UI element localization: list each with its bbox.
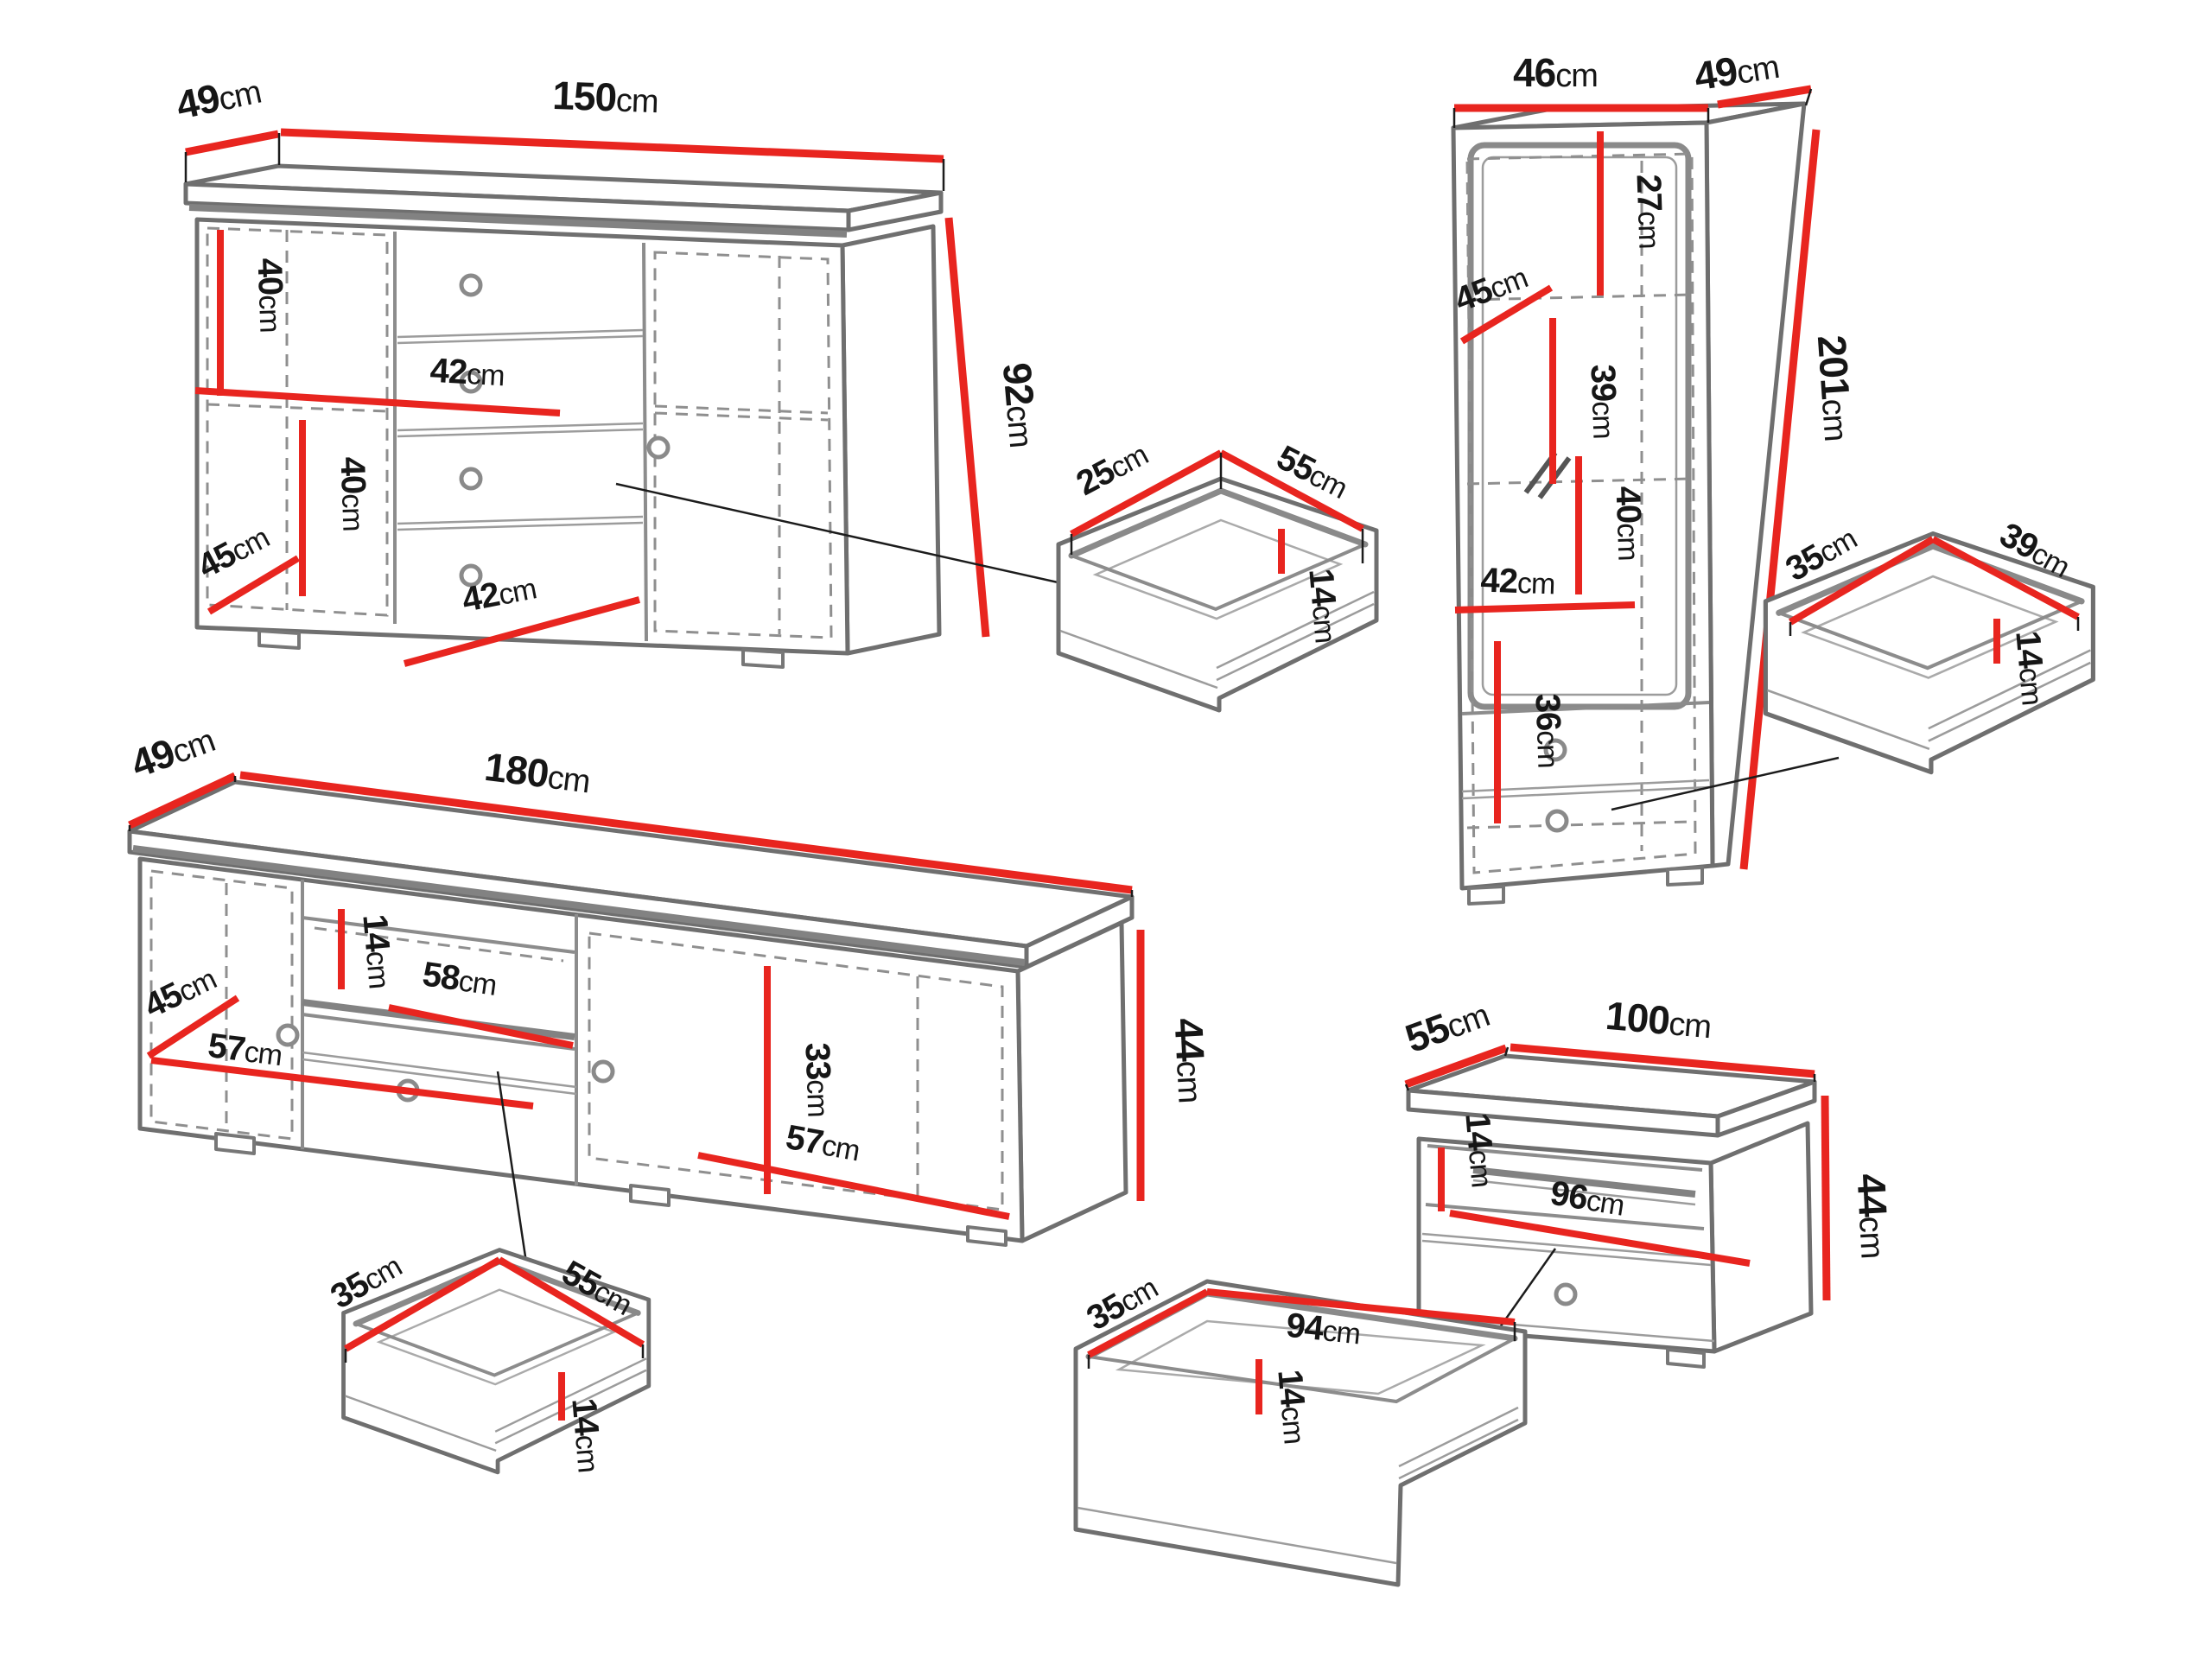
right-drawer-inset: 35cm 39cm 14cm — [1765, 516, 2093, 772]
dim-tv-cabinet-depth: 55cm — [1400, 990, 1495, 1061]
dim-drawer-top-width: 55cm — [1271, 438, 1354, 505]
diagram-canvas: 49cm 150cm 92cm 40cm 42cm 40cm 45cm 42cm… — [0, 0, 2212, 1659]
dim-tall-cabinet-lower-section: 36cm — [1529, 693, 1569, 768]
tv-cabinet: 55cm 100cm 44cm 14cm 96cm — [1400, 990, 1898, 1367]
dimension-line — [949, 218, 986, 637]
foot — [1469, 887, 1503, 904]
top-drawer-inset: 25cm 55cm 14cm — [1058, 435, 1376, 710]
dim-tv-stand-depth: 49cm — [125, 715, 220, 786]
dim-tall-cabinet-upper-section: 39cm — [1584, 364, 1624, 439]
dim-drawer-top-height: 14cm — [1301, 567, 1345, 644]
dim-tv-stand-right-height: 33cm — [798, 1042, 839, 1117]
drawer-knob — [1556, 1285, 1575, 1304]
dimension-line — [1825, 1096, 1827, 1300]
foot — [1668, 1350, 1704, 1367]
dim-tv-cabinet-width: 100cm — [1604, 993, 1713, 1046]
side-panel — [1018, 923, 1126, 1241]
dim-tall-cabinet-width: 46cm — [1513, 50, 1598, 95]
side-panel — [1711, 1123, 1811, 1351]
dim-drawer-bottom-mid-height: 14cm — [1270, 1368, 1314, 1445]
dim-sideboard-mid-section: 40cm — [334, 456, 374, 531]
drawer-knob — [461, 469, 480, 488]
dim-drawer-right-height: 14cm — [2008, 629, 2052, 706]
dim-tall-cabinet-top-section: 27cm — [1630, 174, 1670, 249]
dim-sideboard-top-section: 40cm — [251, 257, 291, 333]
dim-tall-cabinet-depth: 49cm — [1691, 41, 1782, 99]
side-panel — [842, 226, 939, 653]
dim-drawer-bottom-left-height: 14cm — [564, 1396, 608, 1473]
drawer-knob — [1548, 811, 1567, 830]
bottom-middle-drawer-inset: 35cm 94cm 14cm — [1076, 1268, 1525, 1585]
tall-display-cabinet: 46cm 49cm 201cm 27cm 45cm 39cm 40cm 42cm… — [1449, 41, 1861, 904]
dim-tv-cabinet-niche-height: 14cm — [1458, 1111, 1502, 1188]
foot — [743, 650, 783, 667]
foot — [631, 1185, 669, 1205]
foot — [259, 631, 299, 648]
dim-sideboard-depth: 49cm — [172, 67, 264, 128]
dim-tv-stand-width: 180cm — [482, 744, 593, 802]
furniture-dimension-diagram: 49cm 150cm 92cm 40cm 42cm 40cm 45cm 42cm… — [0, 0, 2212, 1659]
dim-tv-stand-height: 44cm — [1166, 1017, 1215, 1103]
foot — [968, 1227, 1006, 1245]
foot — [216, 1134, 254, 1154]
drawer-knob — [461, 276, 480, 295]
bottom-left-drawer-inset: 35cm 55cm 14cm — [324, 1246, 648, 1473]
dim-tv-cabinet-height: 44cm — [1848, 1173, 1897, 1259]
dim-tall-cabinet-inner-width: 42cm — [1480, 562, 1555, 602]
dimension-line — [186, 134, 278, 152]
dim-sideboard-width: 150cm — [551, 73, 658, 121]
dim-tall-cabinet-height: 201cm — [1809, 334, 1861, 442]
front-panel — [1453, 123, 1713, 888]
door-knob — [649, 438, 668, 457]
dim-sideboard-height: 92cm — [995, 361, 1046, 449]
sideboard: 49cm 150cm 92cm 40cm 42cm 40cm 45cm 42cm — [172, 67, 1046, 667]
dimension-line — [281, 132, 944, 159]
door-knob — [594, 1062, 613, 1081]
dim-tv-stand-niche-height: 14cm — [355, 912, 399, 989]
dim-tall-cabinet-mid-section: 40cm — [1609, 486, 1649, 561]
tv-stand: 49cm 180cm 44cm 45cm 57cm 14cm 58cm 33cm… — [125, 715, 1216, 1245]
foot — [1668, 868, 1702, 885]
